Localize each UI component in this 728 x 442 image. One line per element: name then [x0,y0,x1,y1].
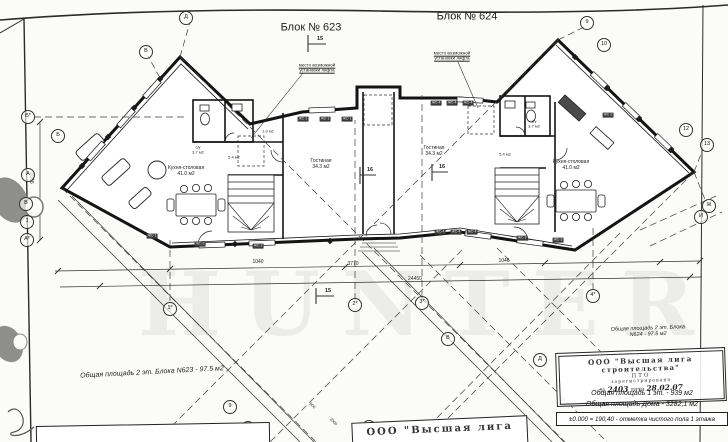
summary-floor-area: Общая площадь 1 эт. - 939 м2 [556,389,728,400]
building-outline [62,40,694,250]
scanned-blueprint-page: HOME HUNTER [0,0,728,442]
bottom-left-title-box [36,422,270,442]
porch-steps [358,243,400,251]
summary-house-area: Общая площадь Дома - 3282,1 м2 [556,400,728,411]
staircase-left [228,175,274,232]
elevation-note-box: ±0.000 = 190,40 - отметка чистого пола 1… [556,412,728,426]
binder-ring [0,171,43,367]
area-summary: Общая площадь 1 эт. - 939 м2 Общая площа… [556,389,728,426]
staircase-right [495,168,539,224]
